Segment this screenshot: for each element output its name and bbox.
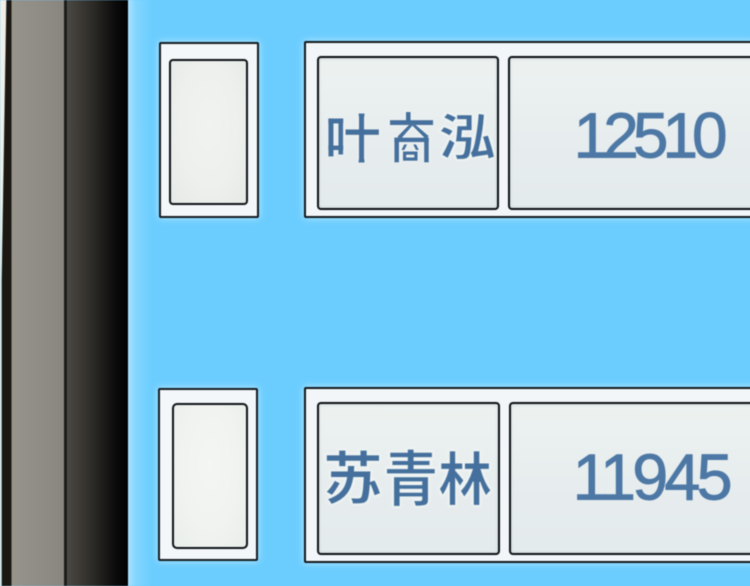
svg-text:11945: 11945 <box>573 440 733 513</box>
svg-text:12510: 12510 <box>574 99 728 171</box>
